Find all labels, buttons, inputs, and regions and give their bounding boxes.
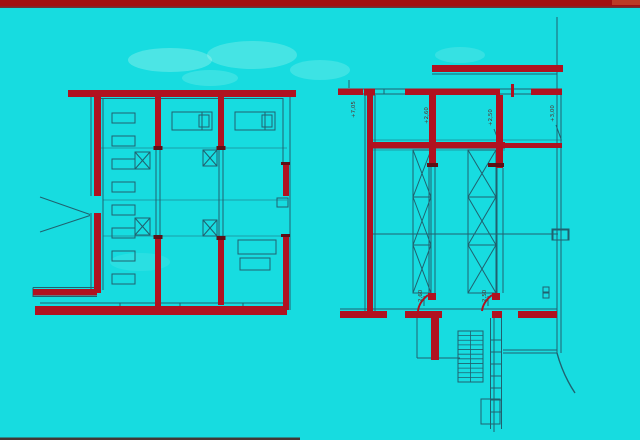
red-wall-segment bbox=[373, 142, 505, 149]
wall-end-cap bbox=[427, 163, 438, 167]
smudge bbox=[182, 70, 238, 86]
red-wall-segment bbox=[428, 293, 436, 300]
wall-end-cap bbox=[217, 146, 226, 150]
smudge bbox=[290, 60, 350, 80]
floor-plan-drawing: +7,05+2,60+2,50+3,002,602,50 bbox=[0, 0, 640, 440]
red-wall-segment bbox=[218, 238, 224, 305]
red-wall-segment bbox=[511, 84, 514, 97]
wall-end-cap bbox=[488, 163, 504, 167]
red-wall-segment bbox=[518, 311, 557, 318]
slide-photo: +7,05+2,60+2,50+3,002,602,50 bbox=[0, 0, 640, 440]
top-red-band bbox=[0, 0, 640, 7]
red-wall-segment bbox=[492, 311, 502, 318]
wall-end-cap bbox=[154, 146, 163, 150]
wall-end-cap bbox=[154, 235, 163, 239]
top-band-underline bbox=[0, 7, 640, 9]
red-wall-segment bbox=[364, 89, 375, 96]
red-wall-segment bbox=[428, 311, 442, 318]
level-annotation: +3,00 bbox=[550, 105, 556, 122]
smudge bbox=[207, 41, 297, 69]
smudge bbox=[435, 47, 485, 63]
red-wall-segment bbox=[340, 311, 387, 318]
level-annotation: +7,05 bbox=[351, 101, 357, 118]
red-wall-segment bbox=[94, 96, 101, 196]
wall-end-cap bbox=[217, 236, 226, 240]
red-wall-segment bbox=[531, 89, 562, 96]
level-annotation: +2,50 bbox=[488, 109, 494, 126]
red-wall-segment bbox=[155, 237, 161, 307]
level-annotation: 2,60 bbox=[418, 289, 424, 302]
red-wall-segment bbox=[496, 95, 503, 168]
red-wall-segment bbox=[431, 318, 439, 360]
red-wall-segment bbox=[338, 89, 363, 96]
top-band-tail bbox=[612, 0, 640, 5]
red-wall-segment bbox=[155, 96, 161, 148]
red-wall-segment bbox=[505, 143, 562, 148]
red-wall-segment bbox=[68, 90, 296, 97]
red-wall-segment bbox=[218, 96, 224, 148]
red-wall-segment bbox=[405, 89, 500, 96]
wall-end-cap bbox=[281, 234, 290, 237]
red-wall-segment bbox=[492, 293, 500, 300]
wall-end-cap bbox=[281, 162, 290, 165]
red-wall-segment bbox=[429, 95, 436, 167]
red-wall-segment bbox=[283, 236, 289, 310]
level-annotation: +2,60 bbox=[424, 107, 430, 124]
smudge bbox=[128, 48, 212, 72]
red-wall-segment bbox=[35, 306, 287, 315]
red-wall-segment bbox=[94, 213, 101, 293]
red-wall-segment bbox=[283, 163, 289, 196]
level-annotation: 2,50 bbox=[482, 289, 488, 302]
red-wall-segment bbox=[367, 95, 373, 313]
red-wall-segment bbox=[33, 289, 97, 296]
red-wall-segment bbox=[432, 65, 563, 72]
